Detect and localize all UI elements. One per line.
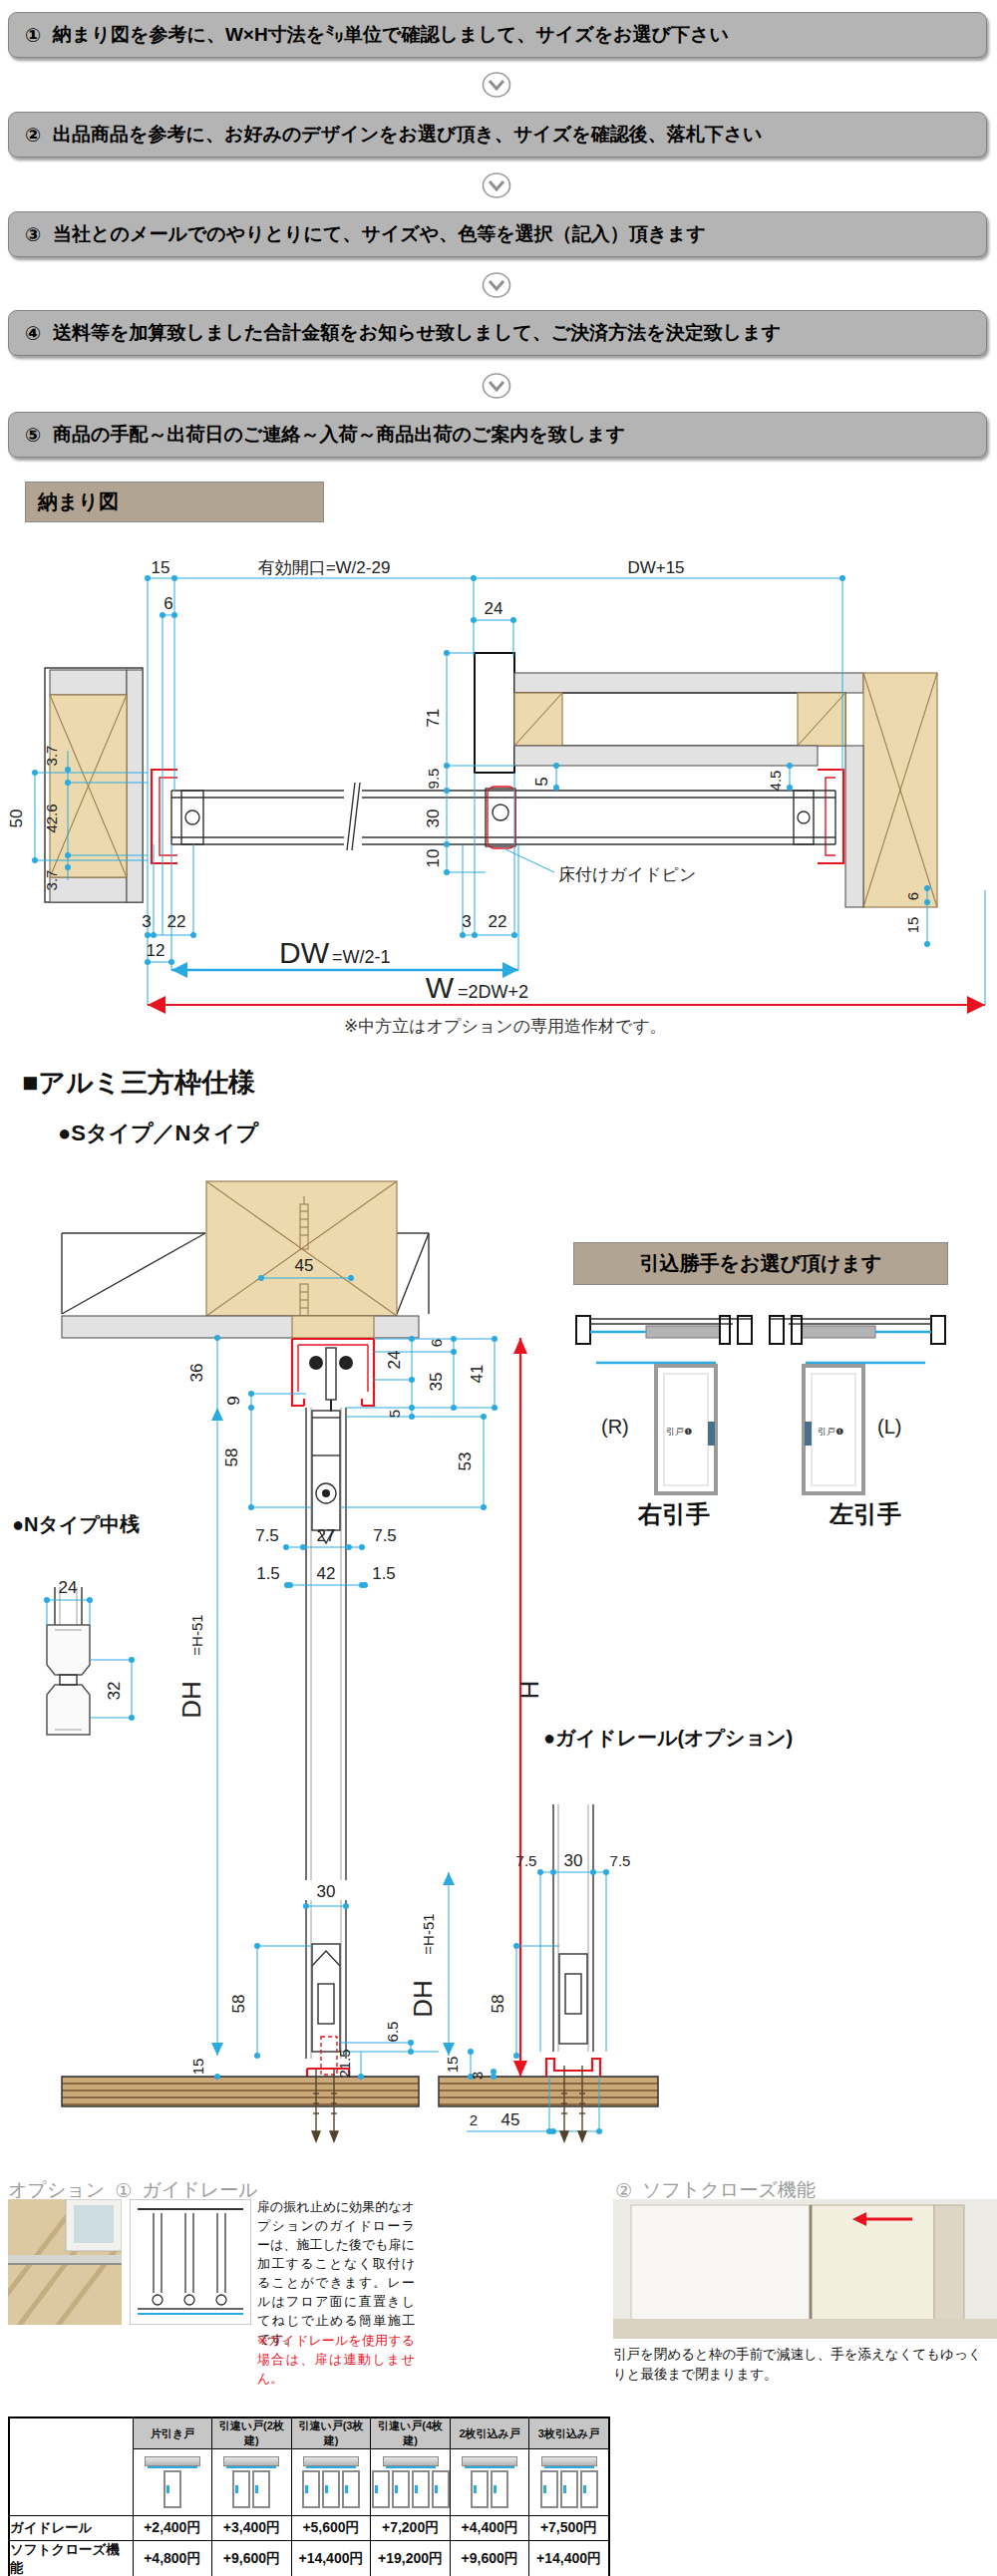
guiderail-diagram [130, 2199, 251, 2325]
dim-label: 42 [317, 1564, 336, 1583]
dim-label: 有効開口=W/2-29 [258, 558, 391, 577]
dim-label: 42.6 [43, 804, 60, 832]
dim-label: 3 [462, 912, 471, 931]
door-tag: 引戸❶ [666, 1426, 692, 1439]
product-info-page: { "colors":{"dim_cyan":"#29abe2","highli… [0, 0, 997, 2576]
pull-direction-plans [576, 1316, 945, 1344]
dim-label: 1.5 [256, 1564, 280, 1583]
dim-label: 2 [470, 2111, 478, 2128]
dim-label: DW+15 [627, 558, 684, 577]
dim-label: 71 [424, 709, 443, 728]
dim-label: 3.7 [43, 746, 60, 767]
dim-label: =H-51 [420, 1913, 437, 1954]
diagram-note: ※中方立はオプションの専用造作材です。 [344, 1017, 667, 1036]
left-wall [45, 668, 143, 902]
column-header: 2枚引込み戸 [450, 2417, 529, 2449]
floor-left [62, 2077, 419, 2106]
door-type-icon [371, 2449, 451, 2516]
floor-right [439, 2077, 658, 2106]
dimensions [32, 575, 985, 1014]
dim-label: W [426, 971, 455, 1004]
column-header: 片引き戸 [133, 2417, 212, 2449]
sn-dimension-labels: 45 36 9 58 24 6 35 41 5 53 7.5 27 7.5 1.… [176, 1256, 544, 2079]
dim-label: 21.5 [336, 2049, 353, 2078]
dim-label: 3 [142, 912, 151, 931]
dim-label: 7.5 [516, 1852, 537, 1869]
red-frame-left [152, 770, 177, 863]
column-header: 引違い戸(4枚建) [371, 2417, 451, 2449]
dim-label: 6.5 [384, 2022, 401, 2043]
section-diagrams: 45 36 9 58 24 6 35 41 5 53 7.5 27 7.5 1.… [0, 1156, 997, 2168]
dim-label: 15 [152, 558, 170, 577]
heading-alumi-frame: ■アルミ三方枠仕様 [22, 1065, 255, 1101]
column-header: 引違い戸(2枚建) [212, 2417, 292, 2449]
door-panel-plan [171, 783, 835, 850]
dim-label: 9.5 [425, 769, 442, 790]
door-type-icon [291, 2449, 371, 2516]
label-right-pull-r: (R) [601, 1416, 629, 1439]
step-banner-2: ② 出品商品を参考に、お好みのデザインをお選び頂き、サイズを確認後、落札下さい [8, 112, 987, 158]
dim-label: 7.5 [610, 1852, 631, 1869]
dim-label: 41 [468, 1365, 487, 1384]
price-cell: +7,200円 [371, 2516, 451, 2541]
right-wall [845, 673, 937, 907]
dim-label: DH [176, 1681, 206, 1719]
step-number: ③ [25, 223, 41, 246]
chevron-down-icon [482, 172, 511, 198]
pull-direction-banner: 引込勝手をお選び頂けます [573, 1242, 948, 1285]
step-text: 当社とのメールでのやりとりにて、サイズや、色等を選択（記入）頂きます [53, 221, 706, 247]
step-text: 出品商品を参考に、お好みのデザインをお選び頂き、サイズを確認後、落札下さい [53, 122, 762, 148]
step-number: ⑤ [25, 424, 41, 447]
label-migi-hikite: 右引手 [638, 1498, 710, 1530]
price-cell: +9,600円 [212, 2541, 292, 2576]
chevron-down-icon [482, 373, 511, 399]
dim-label: 7.5 [373, 1526, 397, 1545]
dim-label: 3.7 [43, 870, 60, 891]
dim-label: 45 [295, 1256, 314, 1275]
dim-label: 6 [428, 1339, 445, 1347]
price-cell: +4,400円 [450, 2516, 529, 2541]
label-hidari-hikite: 左引手 [830, 1498, 901, 1530]
chevron-down-icon [482, 272, 511, 298]
price-cell: +7,500円 [529, 2516, 609, 2541]
dim-label: 15 [904, 917, 921, 934]
step-number: ① [25, 24, 41, 47]
dim-label: 22 [489, 912, 507, 931]
pull-direction-doors [596, 1363, 925, 1493]
door-type-icon [529, 2449, 609, 2516]
part-label: 床付けガイドピン [558, 865, 696, 884]
step-banner-4: ④ 送料等を加算致しました合計金額をお知らせ致しまして、ご決済方法を決定致します [8, 310, 987, 356]
door-type-icon [450, 2449, 529, 2516]
dim-label: 58 [229, 1995, 248, 2014]
dim-label: =W/2-1 [332, 947, 391, 967]
dim-label: =2DW+2 [458, 982, 528, 1002]
step-banner-1: ① 納まり図を参考に、W×H寸法を㍉単位で確認しまして、サイズをお選び下さい [8, 12, 987, 58]
dim-label: =H-51 [188, 1614, 205, 1655]
guiderail-photo [8, 2199, 122, 2325]
label-left-pull-l: (L) [877, 1416, 901, 1439]
dim-label: H [514, 1681, 544, 1700]
dim-label: 4.5 [767, 771, 784, 792]
dim-label: 30 [317, 1882, 336, 1901]
dim-label: DW [279, 936, 330, 969]
step-banner-5: ⑤ 商品の手配～出荷日のご連絡～入荷～商品出荷のご案内を致します [8, 412, 987, 458]
dim-label: 30 [424, 809, 443, 828]
price-cell: +14,400円 [291, 2541, 371, 2576]
step-text: 納まり図を参考に、W×H寸法を㍉単位で確認しまして、サイズをお選び下さい [53, 22, 729, 48]
price-cell: +4,800円 [133, 2541, 212, 2576]
step-text: 送料等を加算致しました合計金額をお知らせ致しまして、ご決済方法を決定致します [53, 320, 781, 346]
dim-label: 9 [224, 1396, 243, 1405]
door-type-icon [212, 2449, 292, 2516]
dim-label: 1.5 [372, 1564, 396, 1583]
dim-label: 58 [489, 1995, 507, 2014]
dim-label: 58 [222, 1449, 241, 1467]
dim-label: 27 [317, 1526, 336, 1545]
row-label: ガイドレール [9, 2516, 133, 2541]
dim-label: 22 [167, 912, 186, 931]
sn-section-drawing [62, 1181, 429, 2077]
dim-label: 32 [105, 1682, 124, 1701]
door-tag: 引戸❶ [818, 1426, 843, 1439]
center-post [475, 653, 514, 773]
dim-label: 45 [501, 2110, 520, 2129]
dim-label: 24 [385, 1351, 404, 1370]
dim-label: 24 [485, 599, 503, 618]
option-price-table: 片引き戸 引違い戸(2枚建) 引違い戸(3枚建) 引違い戸(4枚建) 2枚引込み… [8, 2416, 610, 2576]
softclose-photo [613, 2199, 997, 2339]
heading-guiderail-option: ●ガイドレール(オプション) [543, 1725, 793, 1752]
door-type-icon [133, 2449, 212, 2516]
price-cell: +3,400円 [212, 2516, 292, 2541]
price-cell: +19,200円 [371, 2541, 451, 2576]
price-cell: +2,400円 [133, 2516, 212, 2541]
dim-label: 7.5 [255, 1526, 279, 1545]
mullion-drawing: 24 32 [44, 1578, 135, 1735]
dim-label: 3 [469, 2072, 486, 2080]
step-banner-3: ③ 当社とのメールでのやりとりにて、サイズや、色等を選択（記入）頂きます [8, 211, 987, 257]
price-cell: +9,600円 [450, 2541, 529, 2576]
dim-label: 36 [187, 1364, 206, 1383]
table-corner-cell [9, 2417, 133, 2516]
option1-note: ※ガイドレールを使用する場合は、扉は連動しません。 [257, 2331, 415, 2388]
dim-label: 35 [427, 1373, 446, 1392]
top-wall [514, 673, 863, 766]
dim-label: 6 [164, 594, 172, 613]
option2-description: 引戸を閉めると枠の手前で減速し、手を添えなくてもゆっくりと最後まで閉まります。 [613, 2345, 994, 2385]
dim-label: 24 [59, 1578, 78, 1597]
red-frame-right [818, 770, 843, 863]
sn-dimensions [211, 1275, 527, 2080]
guide-pin-highlight [488, 787, 515, 848]
installation-plan-diagram: 15 有効開口=W/2-29 DW+15 6 24 71 9.5 30 10 5… [0, 551, 997, 1042]
dim-label: 53 [456, 1452, 475, 1471]
column-header: 3枚引込み戸 [529, 2417, 609, 2449]
step-number: ② [25, 124, 41, 147]
dim-label: 15 [189, 2059, 206, 2076]
dim-label: DH [408, 1980, 438, 2018]
price-cell: +5,600円 [291, 2516, 371, 2541]
step-text: 商品の手配～出荷日のご連絡～入荷～商品出荷のご案内を致します [53, 422, 625, 448]
option1-description: 扉の振れ止めに効果的なオプションのガイドローラーは、施工した後でも扉に加工するこ… [257, 2197, 415, 2349]
price-cell: +14,400円 [529, 2541, 609, 2576]
heading-sn-type: ●Sタイプ／Nタイプ [58, 1119, 258, 1148]
column-header: 引違い戸(3枚建) [291, 2417, 371, 2449]
dim-label: 50 [7, 809, 26, 828]
chevron-down-icon [482, 72, 511, 98]
dim-label: 10 [424, 849, 443, 868]
dim-label: 5 [532, 777, 551, 786]
dim-label: 30 [564, 1851, 583, 1870]
dim-label: 6 [904, 892, 921, 900]
dim-label: 15 [444, 2057, 461, 2074]
row-label: ソフトクローズ機能 [9, 2541, 133, 2576]
section-label-osamari: 納まり図 [25, 482, 324, 522]
dim-label: 5 [386, 1410, 403, 1418]
step-number: ④ [25, 322, 41, 345]
heading-n-type-mullion: ●Nタイプ中桟 [12, 1511, 140, 1538]
dim-label: 12 [147, 941, 166, 960]
